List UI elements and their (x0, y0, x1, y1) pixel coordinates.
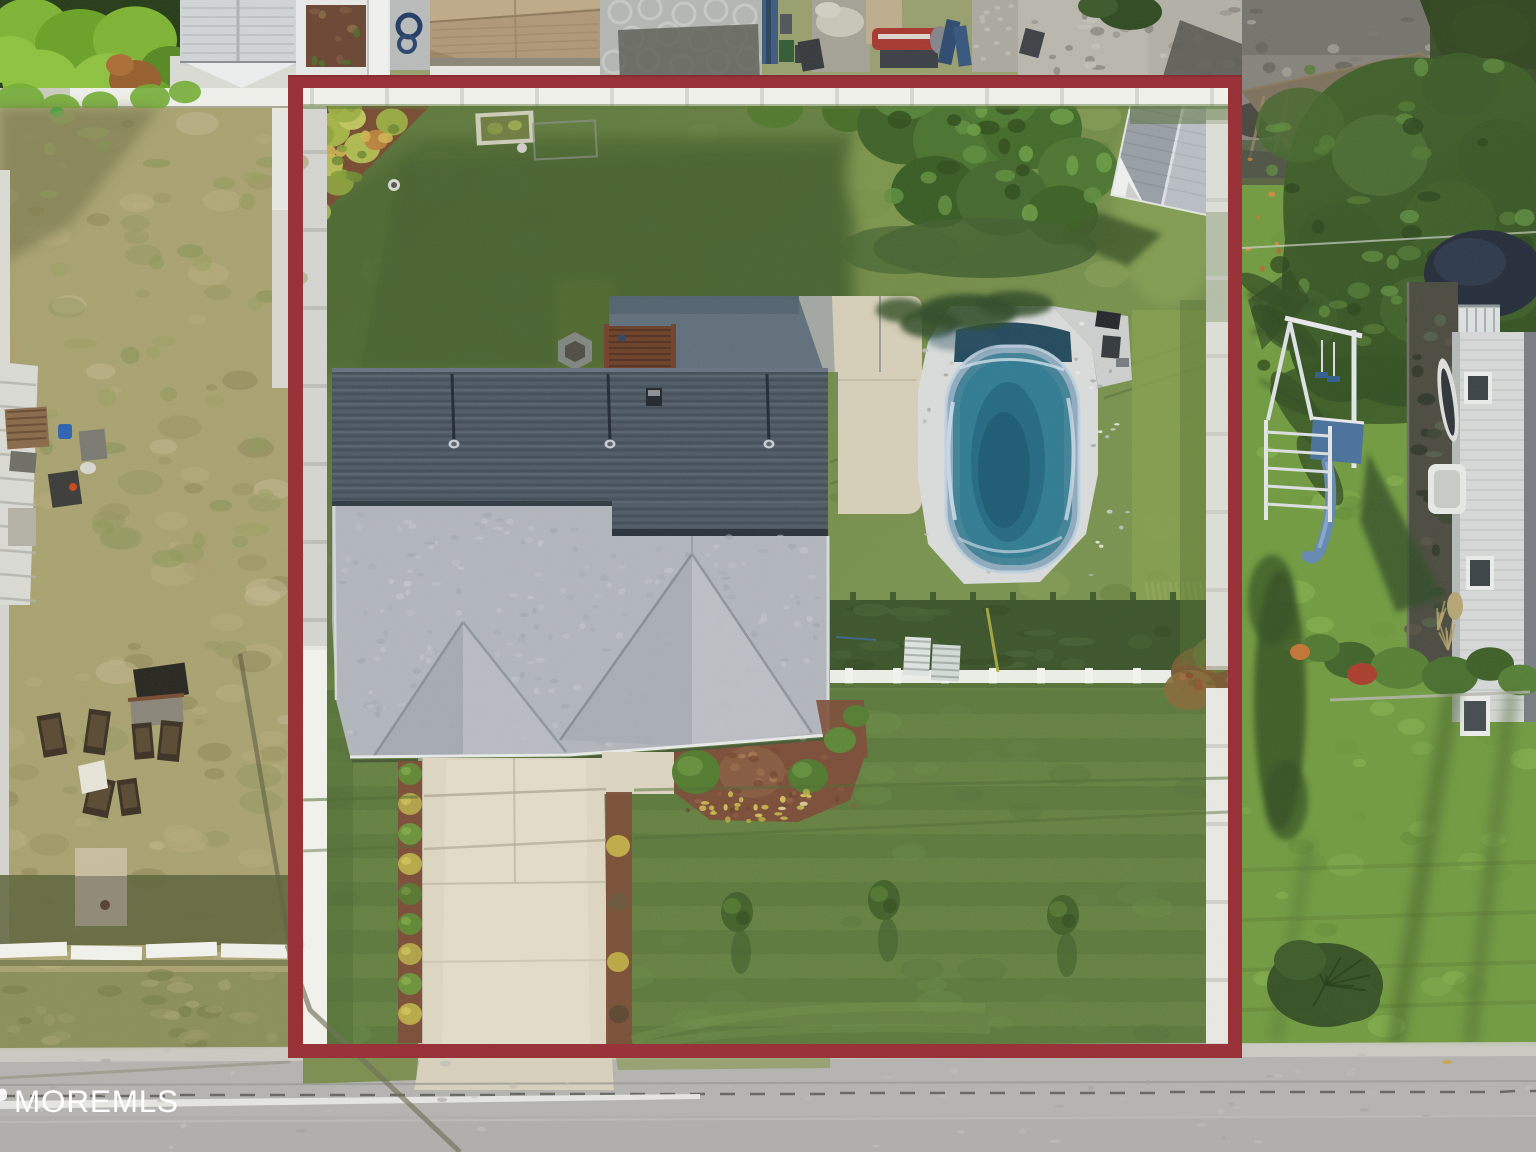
svg-text:MOREMLS: MOREMLS (14, 1083, 179, 1119)
